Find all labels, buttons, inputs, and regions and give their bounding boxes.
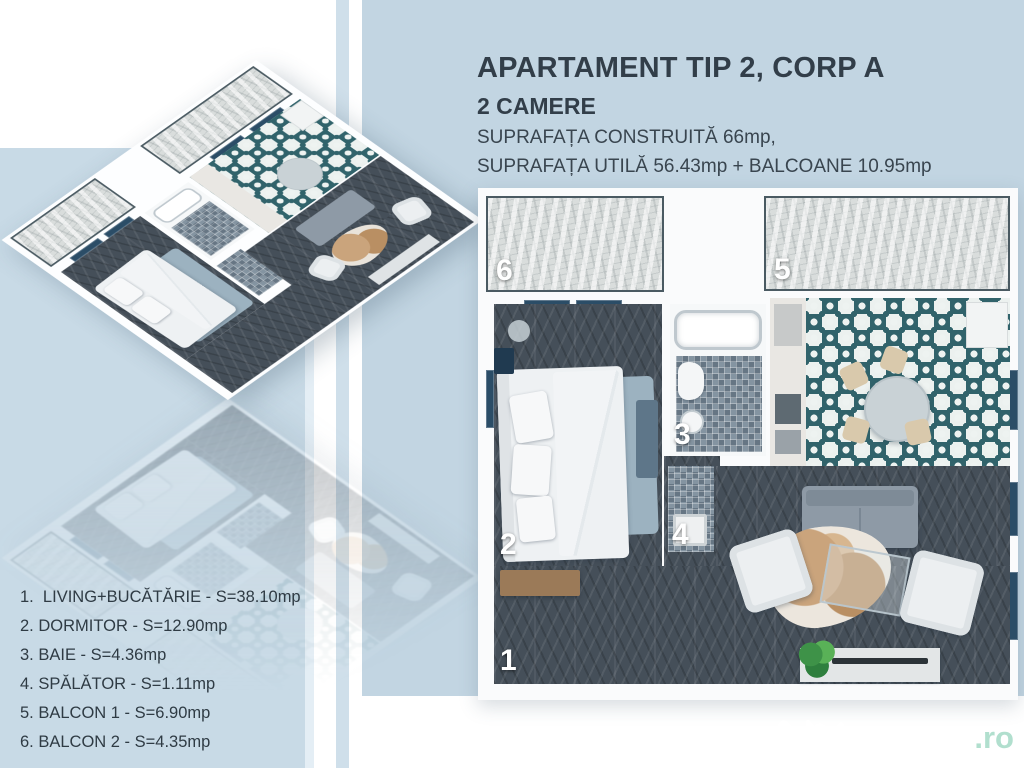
room-bathroom: 3 — [670, 304, 766, 456]
room-number-balcony-2: 6 — [496, 256, 513, 286]
watermark-tld: .ro — [974, 720, 1014, 756]
iso-laundry — [217, 502, 283, 549]
iso-armchair — [305, 515, 348, 545]
window-icon — [1009, 482, 1018, 536]
legend-item-bedroom: 2. DORMITOR - S=12.90mp — [20, 612, 301, 641]
iso-bedroom-rug — [119, 455, 255, 551]
room-number-living: 1 — [500, 646, 517, 676]
iso-kitchen-island — [280, 100, 324, 131]
bed-pillow — [508, 390, 554, 444]
bed-pillow — [510, 444, 551, 497]
toilet — [678, 362, 704, 400]
built-area-line: SUPRAFAȚA CONSTRUITĂ 66mp, — [477, 127, 932, 149]
iso-tv-stand — [368, 513, 440, 564]
legend-item-laundry: 4. SPĂLĂTOR - S=1.11mp — [20, 670, 301, 699]
fridge — [774, 304, 802, 346]
nightstand — [494, 348, 514, 374]
window-icon — [1009, 370, 1018, 430]
usable-area-line: SUPRAFAȚA UTILĂ 56.43mp + BALCOANE 10.95… — [477, 156, 932, 178]
page-title: APARTAMENT TIP 2, CORP A — [477, 52, 932, 85]
dining-chair — [904, 418, 932, 446]
watermark: lajumate.ro — [777, 714, 1014, 762]
listing-image: 6 5 2 — [0, 0, 1024, 768]
iso-window-icon — [103, 560, 134, 582]
lajumate-logo-icon — [777, 714, 845, 762]
iso-dining-table — [267, 151, 332, 197]
plant-icon — [796, 636, 838, 682]
sideboard — [500, 570, 580, 596]
iso-window-icon — [69, 536, 103, 560]
room-balcony-2: 6 — [486, 196, 664, 292]
window-icon — [1009, 572, 1018, 640]
kitchen-counter — [770, 298, 806, 468]
tv-icon — [832, 658, 928, 664]
bed-duvet — [553, 370, 625, 556]
room-number-bathroom: 3 — [674, 420, 691, 450]
legend-item-living: 1. LIVING+BUCĂTĂRIE - S=38.10mp — [20, 583, 301, 612]
room-number-bedroom: 2 — [500, 530, 517, 560]
window-icon — [486, 370, 494, 428]
room-bedroom: 2 — [494, 304, 662, 568]
bathtub — [674, 310, 762, 350]
legend-item-balcony1: 5. BALCON 1 - S=6.90mp — [20, 699, 301, 728]
kitchen-island — [966, 302, 1008, 348]
stove — [775, 394, 801, 424]
iso-bed — [93, 248, 238, 349]
title-block: APARTAMENT TIP 2, CORP A 2 CAMERE SUPRAF… — [477, 52, 932, 178]
iso-sofa — [294, 551, 376, 609]
legend-item-balcony2: 6. BALCON 2 - S=4.35mp — [20, 728, 301, 757]
bedroom-bench — [636, 400, 658, 478]
floor-lamp-icon — [508, 320, 530, 342]
room-laundry: 4 — [668, 466, 714, 552]
bed-pillow — [516, 495, 556, 543]
watermark-brand: lajumate — [845, 720, 975, 756]
iso-cowhide-rug — [321, 525, 400, 581]
sofa-back — [806, 490, 914, 506]
legend-item-bath: 3. BAIE - S=4.36mp — [20, 641, 301, 670]
kitchen-area — [770, 298, 1010, 468]
iso-bedroom-floor — [61, 438, 265, 582]
iso-pillow — [102, 492, 145, 522]
room-number-balcony-1: 5 — [774, 255, 791, 285]
iso-pillow — [130, 473, 173, 503]
iso-plan — [2, 60, 483, 400]
iso-living-floor-lower — [185, 405, 473, 609]
iso-armchair — [388, 571, 435, 604]
room-legend: 1. LIVING+BUCĂTĂRIE - S=38.10mp 2. DORMI… — [20, 583, 301, 757]
kitchen-sink — [775, 430, 801, 454]
room-number-laundry: 4 — [672, 520, 689, 550]
room-balcony-1: 5 — [764, 196, 1010, 291]
iso-duvet — [119, 468, 233, 546]
subtitle-rooms: 2 CAMERE — [477, 93, 932, 120]
floor-plan-2d: 6 5 2 — [478, 188, 1018, 705]
iso-bed — [93, 448, 238, 549]
